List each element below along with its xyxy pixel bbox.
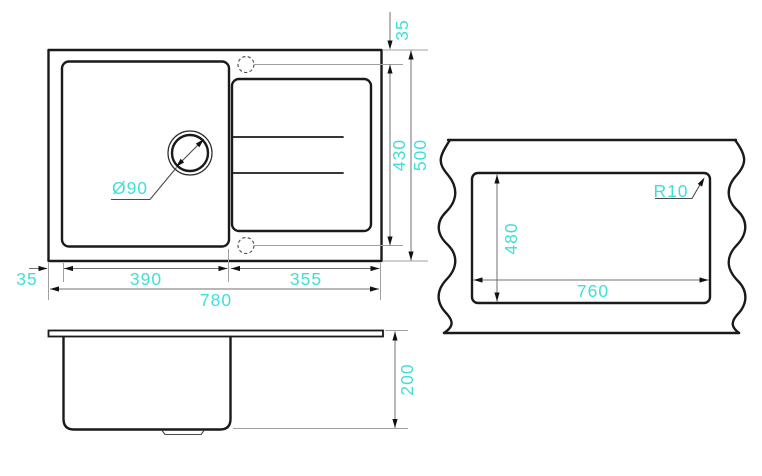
arrowhead-down <box>387 237 392 246</box>
sink-bowl-outline <box>62 62 229 247</box>
arrowhead-up <box>392 332 397 341</box>
arrowhead-up <box>494 175 499 184</box>
drawing-svg: Ø90 35 430 500 35 390 <box>0 0 762 476</box>
dim-label-drainboard-width: 355 <box>290 269 322 289</box>
countertop-cutout-view: 480 760 R10 <box>439 140 746 333</box>
dim-label-overall-height: 500 <box>410 139 430 171</box>
dim-label-bowl-depth: 200 <box>397 363 417 395</box>
sink-dimension-drawing: Ø90 35 430 500 35 390 <box>0 0 762 476</box>
dim-label-left-offset: 35 <box>16 269 37 289</box>
arrowhead-up <box>408 51 413 60</box>
sink-rim-profile <box>49 331 384 337</box>
arrowhead-right <box>219 266 228 271</box>
dim-label-overall-width: 780 <box>200 290 232 310</box>
dim-label-cutout-height: 480 <box>501 222 521 254</box>
arrowhead-right <box>39 266 48 271</box>
arrowhead-down <box>387 41 392 50</box>
arrowhead-right <box>370 286 379 291</box>
arrowhead-right <box>700 277 709 282</box>
dim-label-cutout-width: 760 <box>577 281 609 301</box>
dim-label-bowl-width: 390 <box>130 269 162 289</box>
arrowhead-up <box>387 65 392 74</box>
countertop-break-edge-right <box>729 140 746 333</box>
countertop-break-edge-left <box>439 140 456 333</box>
arrowhead-down <box>408 252 413 261</box>
tap-hole-dashed-circle-bottom <box>238 238 254 254</box>
arrowhead-down <box>494 293 499 302</box>
arrowhead-left <box>50 286 59 291</box>
sink-outer-rim <box>49 50 382 261</box>
arrowhead-left <box>231 266 240 271</box>
arrowhead-right <box>371 266 380 271</box>
bowl-profile <box>64 337 231 430</box>
arrowhead-down <box>392 419 397 428</box>
dim-label-inner-height: 430 <box>389 139 409 171</box>
sink-side-view: 200 <box>49 331 418 435</box>
dim-label-corner-radius: R10 <box>653 181 688 201</box>
dim-label-top-offset: 35 <box>392 19 412 40</box>
dim-label-drain-diameter: Ø90 <box>112 178 148 198</box>
arrowhead-left <box>474 277 483 282</box>
arrowhead-left <box>64 266 73 271</box>
arrowhead-up-right <box>698 178 705 187</box>
tap-hole-dashed-circle-top <box>238 57 254 73</box>
drain-fitting-profile <box>162 431 204 435</box>
sink-top-view: Ø90 35 430 500 35 390 <box>16 12 430 310</box>
drainboard-outline <box>232 79 371 231</box>
